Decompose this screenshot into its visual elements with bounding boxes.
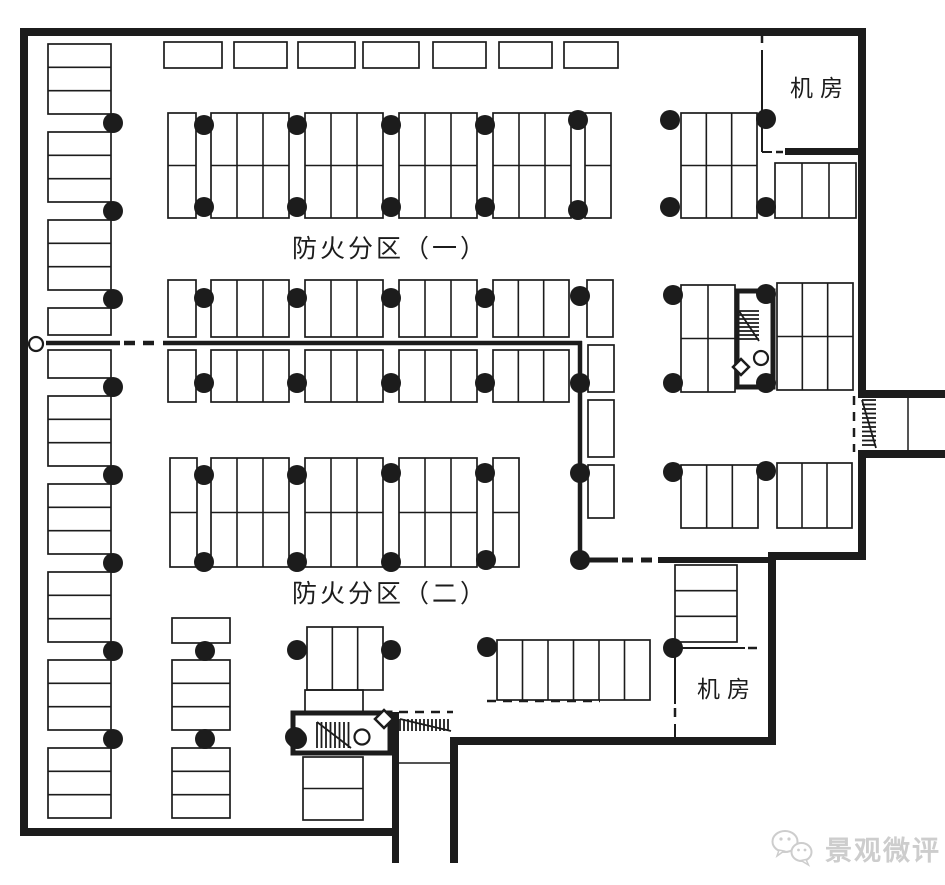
parking-stall-group [399, 458, 477, 567]
exterior-wall [858, 458, 866, 558]
stall-outline [499, 42, 552, 68]
parking-stall-group [305, 350, 383, 402]
stall-outline [234, 42, 287, 68]
parking-stall-group [588, 345, 614, 392]
exterior-wall [20, 28, 866, 36]
column-dot [475, 115, 495, 135]
column-dot [570, 550, 590, 570]
parking-stall-group [48, 44, 111, 114]
parking-stall-group [363, 42, 419, 68]
parking-stall-group [211, 350, 289, 402]
parking-stall-group [399, 280, 477, 337]
plan-geometry [20, 28, 945, 863]
stair-flight-hatch [400, 719, 451, 731]
parking-stall-group [493, 280, 569, 337]
parking-stall-group [48, 220, 111, 290]
column-dot [381, 552, 401, 572]
column-dot [103, 113, 123, 133]
column-dot [287, 373, 307, 393]
column-dot [381, 640, 401, 660]
exterior-wall [20, 828, 399, 836]
column-dot [568, 200, 588, 220]
parking-stall-group [211, 113, 289, 218]
parking-stall-group [48, 484, 111, 554]
stall-outline [675, 565, 737, 642]
stall-outline [298, 42, 355, 68]
watermark-text: 景观微评 [825, 829, 941, 868]
column-dot [103, 553, 123, 573]
stall-outline [493, 280, 569, 337]
parking-stall-group [305, 113, 383, 218]
stall-outline [164, 42, 222, 68]
watermark: 景观微评 [770, 828, 941, 868]
parking-stall-group [164, 42, 222, 68]
parking-stall-group [777, 463, 852, 528]
parking-stall-group [775, 163, 856, 218]
parking-stall-group [433, 42, 486, 68]
column-dot [285, 727, 305, 747]
column-dot [381, 115, 401, 135]
column-dot [381, 288, 401, 308]
parking-stall-group [211, 280, 289, 337]
column-dot [663, 373, 683, 393]
machine-room-bottom-label: 机房 [697, 677, 757, 703]
stall-outline [305, 690, 363, 712]
parking-stall-group [48, 308, 111, 335]
parking-stall-group [564, 42, 618, 68]
exterior-wall [768, 552, 866, 560]
stair-flight-hatch [862, 400, 876, 448]
circle-symbol [754, 351, 768, 365]
parking-stall-group [48, 396, 111, 466]
column-dot [194, 552, 214, 572]
column-dot [103, 465, 123, 485]
column-dot [195, 729, 215, 749]
parking-stall-group [681, 113, 757, 218]
scanned-floor-plan-page: 防火分区（一） 防火分区（二） 机房 机房 景观微评 [0, 0, 945, 885]
column-dot [660, 197, 680, 217]
parking-stall-group [305, 690, 363, 712]
stall-outline [48, 132, 111, 202]
stair-flight-hatch [317, 722, 351, 748]
column-dot [103, 201, 123, 221]
parking-stall-group [172, 660, 230, 730]
parking-stall-group [168, 280, 196, 337]
stall-outline [588, 465, 614, 518]
stall-outline [48, 572, 111, 642]
parking-stall-group [48, 660, 111, 730]
column-dot [381, 463, 401, 483]
stall-outline [48, 748, 111, 818]
stall-outline [211, 350, 289, 402]
column-dot [475, 197, 495, 217]
parking-stall-group [399, 350, 477, 402]
column-dot [756, 284, 776, 304]
exterior-wall [785, 148, 858, 155]
column-dot [103, 377, 123, 397]
stall-outline [399, 280, 477, 337]
fire-zone-1-label: 防火分区（一） [292, 234, 488, 263]
stall-outline [172, 618, 230, 643]
column-dot [103, 729, 123, 749]
stall-outline [399, 350, 477, 402]
exterior-wall [858, 450, 945, 458]
parking-stall-group [497, 640, 650, 700]
column-dot [381, 373, 401, 393]
parking-stall-group [675, 565, 737, 642]
parking-stall-group [493, 458, 519, 567]
column-dot [663, 285, 683, 305]
parking-stall-group [48, 748, 111, 818]
stall-outline [493, 350, 569, 402]
column-dot [194, 465, 214, 485]
stall-outline [307, 627, 383, 690]
column-dot [287, 465, 307, 485]
stall-outline [211, 280, 289, 337]
stall-outline [48, 350, 111, 378]
parking-stall-group [170, 458, 197, 567]
column-dot [756, 109, 776, 129]
column-dot [194, 373, 214, 393]
stall-outline [48, 660, 111, 730]
column-dot [568, 110, 588, 130]
stall-outline [775, 163, 856, 218]
parking-stall-group [48, 572, 111, 642]
column-dot [570, 286, 590, 306]
parking-stall-group [399, 113, 477, 218]
stall-outline [588, 345, 614, 392]
stall-outline [588, 400, 614, 457]
stall-outline [587, 280, 613, 337]
column-dot [756, 461, 776, 481]
parking-stall-group [588, 465, 614, 518]
parking-stall-group [305, 280, 383, 337]
stall-outline [305, 280, 383, 337]
stall-outline [172, 660, 230, 730]
exterior-wall [768, 552, 776, 744]
column-dot [660, 110, 680, 130]
column-dot [663, 462, 683, 482]
parking-stall-group [585, 113, 611, 218]
parking-stall-group [777, 283, 853, 390]
exterior-wall [450, 737, 458, 863]
parking-stall-group [48, 132, 111, 202]
parking-stall-group [588, 400, 614, 457]
column-dot [194, 115, 214, 135]
parking-stall-group [168, 113, 196, 218]
exterior-wall [20, 28, 28, 836]
column-dot [287, 640, 307, 660]
stall-outline [48, 220, 111, 290]
stall-outline [564, 42, 618, 68]
column-dot [381, 197, 401, 217]
column-dot [195, 641, 215, 661]
parking-stall-group [587, 280, 613, 337]
column-dot [475, 288, 495, 308]
column-dot [287, 115, 307, 135]
stall-outline [168, 350, 196, 402]
parking-stall-group [234, 42, 287, 68]
parking-stall-group [172, 748, 230, 818]
floor-plan: 防火分区（一） 防火分区（二） 机房 机房 [0, 0, 945, 885]
parking-stall-group [303, 757, 363, 820]
wechat-logo-icon [770, 828, 816, 868]
parking-stall-group [493, 350, 569, 402]
exterior-wall [858, 28, 866, 396]
column-dot [287, 197, 307, 217]
column-dot [570, 463, 590, 483]
parking-stall-group [499, 42, 552, 68]
stair-flight-hatch [739, 311, 759, 341]
column-dot [756, 373, 776, 393]
column-dot [103, 289, 123, 309]
parking-stall-group [298, 42, 355, 68]
exterior-wall [455, 737, 776, 745]
circle-symbol [29, 337, 43, 351]
parking-stall-group [172, 618, 230, 643]
column-dot [663, 638, 683, 658]
parking-stall-group [48, 350, 111, 378]
column-dot [287, 552, 307, 572]
stall-outline [172, 748, 230, 818]
stall-outline [168, 280, 196, 337]
column-dot [103, 641, 123, 661]
column-dot [287, 288, 307, 308]
stall-outline [777, 463, 852, 528]
parking-stall-group [493, 113, 571, 218]
exterior-wall [392, 712, 399, 863]
column-dot [475, 463, 495, 483]
column-dot [475, 373, 495, 393]
parking-stall-group [168, 350, 196, 402]
stall-outline [48, 484, 111, 554]
stall-outline [48, 396, 111, 466]
parking-stall-group [305, 458, 383, 567]
circle-symbol [355, 730, 370, 745]
column-dot [477, 637, 497, 657]
fire-zone-2-label: 防火分区（二） [292, 579, 488, 608]
stall-outline [305, 350, 383, 402]
stall-outline [433, 42, 486, 68]
parking-stall-group [681, 285, 735, 392]
column-dot [570, 373, 590, 393]
column-dot [476, 550, 496, 570]
column-dot [194, 288, 214, 308]
parking-stall-group [681, 465, 758, 528]
exterior-wall [858, 390, 945, 398]
stall-outline [681, 465, 758, 528]
machine-room-top-label: 机房 [790, 76, 850, 102]
parking-stall-group [307, 627, 383, 690]
parking-stall-group [211, 458, 289, 567]
stall-outline [48, 308, 111, 335]
column-dot [194, 197, 214, 217]
column-dot [756, 197, 776, 217]
stall-outline [48, 44, 111, 114]
stall-outline [363, 42, 419, 68]
